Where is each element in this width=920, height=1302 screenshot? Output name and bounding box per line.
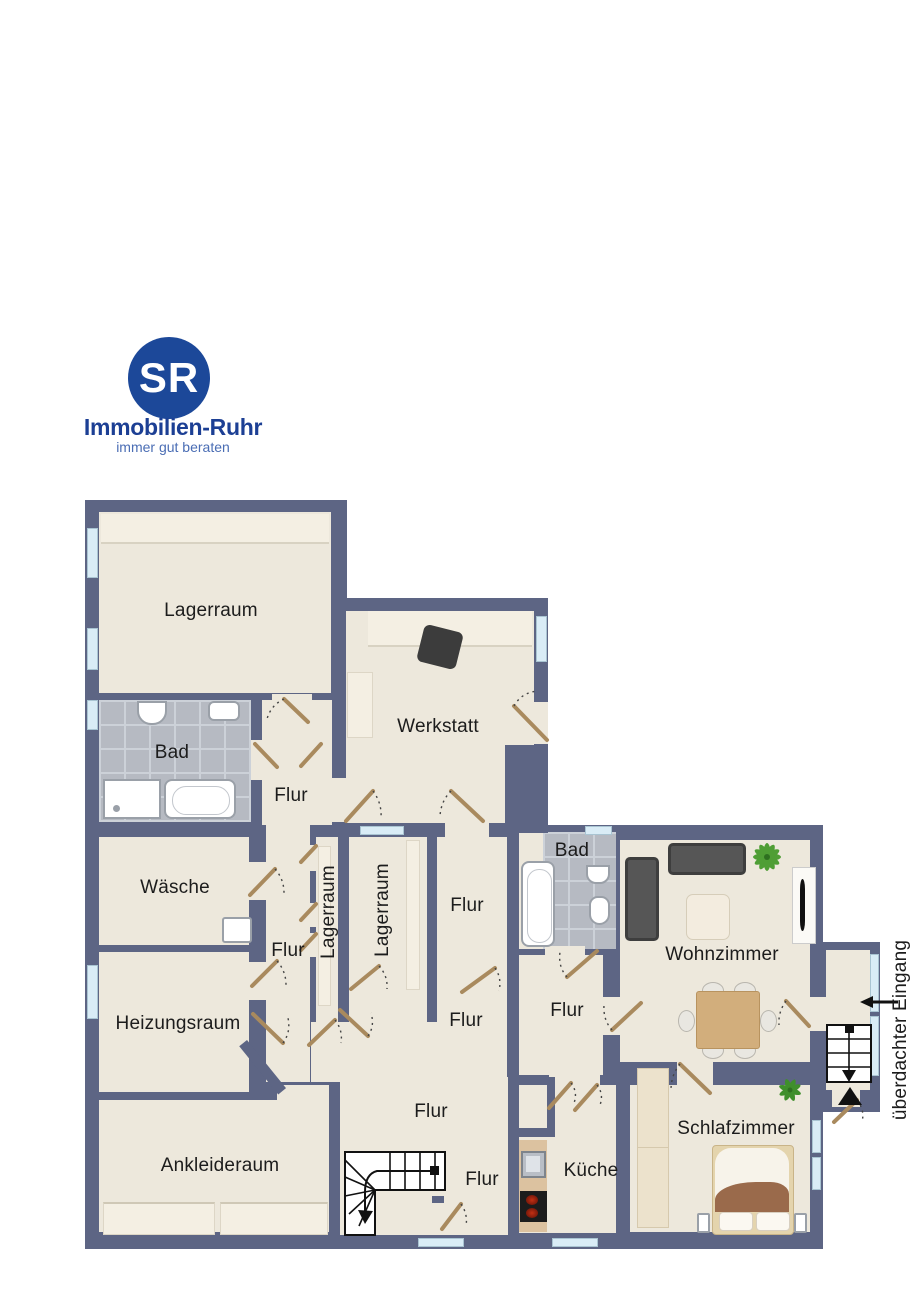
room-label-wohnzimmer: Wohnzimmer bbox=[665, 944, 779, 966]
room-label-lagerraum-top: Lagerraum bbox=[164, 600, 258, 622]
room-label-schlafzimmer: Schlafzimmer bbox=[677, 1118, 794, 1140]
entrance-direction-icon bbox=[838, 1087, 862, 1105]
room-label-lagerraum-narrow: Lagerraum bbox=[318, 865, 340, 959]
plant-icon bbox=[750, 840, 784, 874]
room-label-werkstatt: Werkstatt bbox=[397, 716, 479, 738]
room-label-flur-stairs: Flur bbox=[465, 1169, 499, 1191]
room-label-ankleideraum: Ankleideraum bbox=[161, 1155, 280, 1177]
floor-plan-page: SR Immobilien-Ruhr immer gut beraten bbox=[0, 0, 920, 1302]
room-label-flur-small: Flur bbox=[449, 1010, 483, 1032]
room-label-flur-corridor: Flur bbox=[271, 940, 305, 962]
room-label-bad-top: Bad bbox=[155, 742, 189, 764]
plant-icon bbox=[776, 1076, 804, 1104]
room-label-flur-top: Flur bbox=[274, 785, 308, 807]
room-label-heizungsraum: Heizungsraum bbox=[116, 1013, 241, 1035]
room-label-flur-bottom: Flur bbox=[414, 1101, 448, 1123]
room-label-flur-mid: Flur bbox=[450, 895, 484, 917]
room-label-kueche: Küche bbox=[564, 1160, 619, 1182]
entrance-stairs-icon bbox=[826, 1024, 872, 1084]
winder-stairs-icon bbox=[345, 1152, 445, 1235]
room-label-eingang: überdachter Eingang bbox=[890, 940, 912, 1120]
room-label-bad-mid: Bad bbox=[555, 840, 589, 862]
room-label-waesche: Wäsche bbox=[140, 877, 210, 899]
door-swings-overlay bbox=[0, 0, 920, 1302]
room-label-flur-center: Flur bbox=[550, 1000, 584, 1022]
room-label-lagerraum-mid: Lagerraum bbox=[372, 863, 394, 957]
